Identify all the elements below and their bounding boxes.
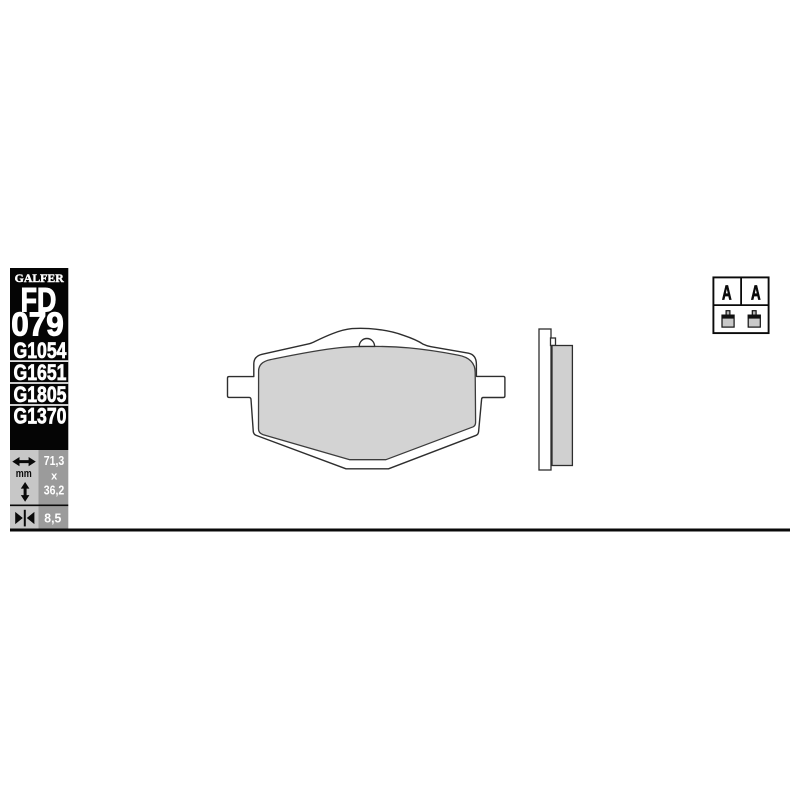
svg-text:A: A: [722, 282, 732, 305]
svg-text:36,2: 36,2: [44, 483, 65, 498]
svg-text:A: A: [751, 282, 761, 305]
svg-text:x: x: [51, 470, 58, 482]
svg-text:G1370: G1370: [14, 404, 67, 429]
svg-text:71,3: 71,3: [44, 453, 65, 468]
svg-text:mm: mm: [16, 468, 32, 480]
svg-text:8,5: 8,5: [44, 511, 61, 526]
svg-text:079: 079: [11, 306, 64, 343]
